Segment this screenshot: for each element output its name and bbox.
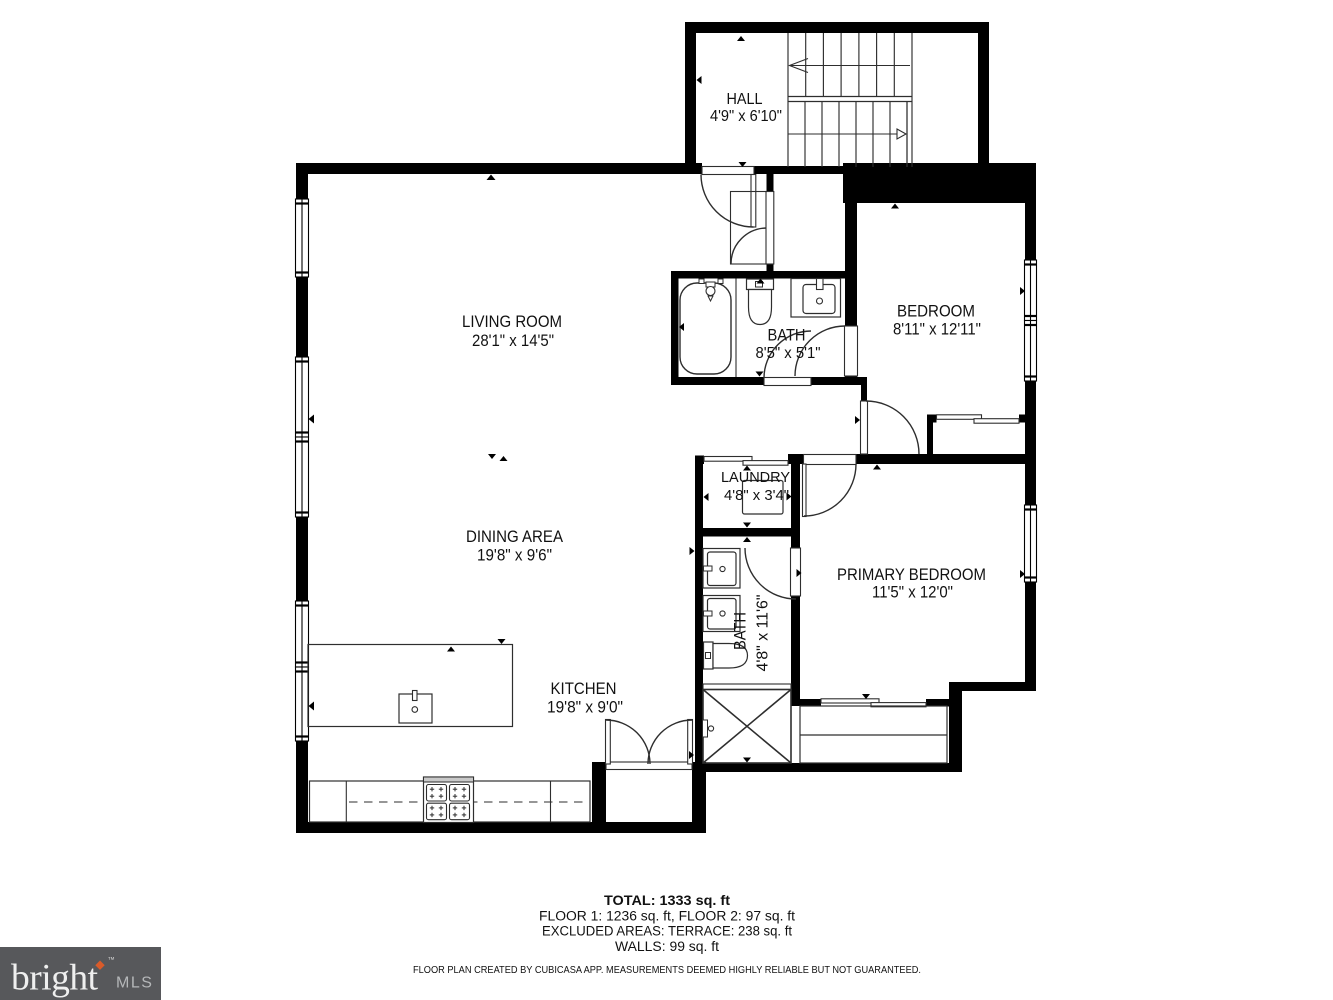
svg-text:BATH: BATH bbox=[731, 612, 750, 650]
svg-text:4'8" x 11'6": 4'8" x 11'6" bbox=[755, 595, 772, 672]
svg-text:TOTAL: 1333 sq. ft: TOTAL: 1333 sq. ft bbox=[604, 893, 731, 908]
svg-text:DINING AREA: DINING AREA bbox=[466, 527, 564, 546]
svg-text:HALL: HALL bbox=[727, 91, 763, 108]
svg-text:bright: bright bbox=[11, 958, 99, 999]
svg-text:MLS: MLS bbox=[116, 975, 153, 992]
svg-text:28'1" x 14'5": 28'1" x 14'5" bbox=[472, 331, 554, 350]
svg-text:4'9" x 6'10": 4'9" x 6'10" bbox=[710, 108, 782, 125]
svg-text:FLOOR 1: 1236 sq. ft, FLOOR 2:: FLOOR 1: 1236 sq. ft, FLOOR 2: 97 sq. ft bbox=[539, 908, 795, 923]
svg-text:BATH: BATH bbox=[768, 326, 806, 345]
svg-text:4'8" x 3'4": 4'8" x 3'4" bbox=[724, 488, 789, 504]
svg-text:FLOOR PLAN CREATED BY CUBICASA: FLOOR PLAN CREATED BY CUBICASA APP. MEAS… bbox=[413, 965, 921, 976]
svg-text:8'5" x 5'1": 8'5" x 5'1" bbox=[756, 345, 821, 362]
svg-text:™: ™ bbox=[108, 955, 116, 964]
svg-text:19'8" x 9'6": 19'8" x 9'6" bbox=[477, 546, 552, 565]
svg-text:KITCHEN: KITCHEN bbox=[551, 679, 617, 698]
svg-text:19'8" x 9'0": 19'8" x 9'0" bbox=[547, 698, 623, 717]
svg-text:WALLS: 99 sq. ft: WALLS: 99 sq. ft bbox=[615, 939, 719, 954]
svg-text:LIVING ROOM: LIVING ROOM bbox=[462, 312, 562, 331]
svg-text:11'5" x 12'0": 11'5" x 12'0" bbox=[872, 584, 953, 602]
svg-text:EXCLUDED AREAS: TERRACE: 238 s: EXCLUDED AREAS: TERRACE: 238 sq. ft bbox=[542, 924, 792, 939]
svg-text:PRIMARY BEDROOM: PRIMARY BEDROOM bbox=[837, 565, 986, 584]
svg-text:LAUNDRY: LAUNDRY bbox=[721, 470, 790, 486]
svg-text:BEDROOM: BEDROOM bbox=[897, 302, 975, 321]
svg-text:8'11" x 12'11": 8'11" x 12'11" bbox=[893, 321, 981, 339]
